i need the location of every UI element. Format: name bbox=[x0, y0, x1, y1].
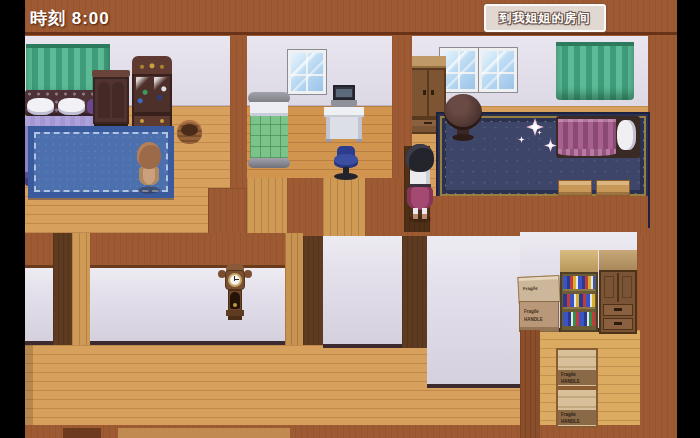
box-bottom: Fragile HANDLE bbox=[519, 301, 559, 332]
game-screen: Fragile Fragile HANDLE Fragile HA bbox=[0, 0, 700, 438]
box-stencil: Fragile bbox=[523, 285, 538, 291]
cabinet-drawers bbox=[599, 250, 637, 334]
bookshelf bbox=[560, 250, 598, 332]
clock-knob bbox=[244, 270, 252, 278]
wardrobe-door bbox=[98, 82, 110, 118]
drawer-handle bbox=[614, 308, 622, 311]
floor-shadow bbox=[25, 345, 33, 425]
bed-ruffle bbox=[558, 149, 616, 156]
glass-pane bbox=[154, 77, 168, 111]
crate-stencil: HANDLE bbox=[561, 378, 580, 383]
wall-face bbox=[90, 268, 285, 345]
desk-body bbox=[326, 117, 362, 139]
wardrobe-cornice bbox=[92, 70, 130, 77]
laptop-keyboard bbox=[331, 100, 357, 107]
pillow bbox=[27, 98, 54, 115]
player-hair bbox=[406, 144, 434, 172]
bookshelf-top bbox=[560, 250, 598, 272]
wall-cap bbox=[90, 233, 287, 268]
glass-pane bbox=[136, 77, 150, 111]
player-foot bbox=[422, 214, 427, 219]
table-top bbox=[444, 94, 482, 130]
door-shadow bbox=[402, 236, 427, 348]
npc-shadow bbox=[137, 186, 161, 194]
knob bbox=[431, 90, 434, 95]
crate-stencil: Fragile bbox=[561, 411, 576, 416]
window-shine bbox=[291, 53, 323, 91]
wall-block bbox=[287, 178, 323, 240]
bed-magenta bbox=[556, 116, 640, 158]
basket-opening bbox=[181, 124, 198, 136]
knob bbox=[423, 90, 426, 95]
player-black-hair[interactable] bbox=[406, 144, 434, 224]
cardboard-boxes: Fragile Fragile HANDLE bbox=[518, 276, 560, 332]
bed-sheet bbox=[250, 102, 288, 116]
doorway-floor bbox=[72, 233, 90, 345]
wall-pillar bbox=[520, 330, 540, 438]
cabinet-drawer bbox=[603, 304, 633, 316]
cabinet-crest bbox=[132, 56, 172, 74]
wall-cap bbox=[25, 233, 53, 268]
table-base bbox=[452, 134, 474, 141]
bench bbox=[558, 180, 592, 196]
book-row bbox=[563, 312, 595, 326]
office-chair bbox=[332, 146, 360, 182]
window-middle-room bbox=[288, 50, 326, 94]
doorway-floor bbox=[247, 178, 287, 236]
drawer-handle bbox=[614, 322, 622, 325]
bed-quilt bbox=[250, 116, 288, 158]
wall-cap bbox=[412, 196, 648, 236]
book-row bbox=[563, 294, 595, 309]
wood-pillar bbox=[285, 233, 303, 345]
pillow bbox=[58, 98, 85, 115]
screen-edge-right bbox=[677, 0, 700, 438]
crate-plate: Fragile HANDLE bbox=[558, 410, 596, 425]
window-shine bbox=[482, 51, 514, 89]
box-stencil: Fragile bbox=[524, 308, 539, 313]
bench bbox=[596, 180, 630, 196]
window-shine bbox=[443, 51, 475, 89]
box-top: Fragile bbox=[517, 275, 560, 304]
pendulum bbox=[233, 303, 237, 307]
cabinet-door-panel bbox=[604, 276, 614, 298]
wall-face bbox=[25, 268, 53, 345]
player-skirt bbox=[407, 187, 433, 210]
crate: Fragile HANDLE bbox=[556, 348, 598, 388]
wall-face bbox=[323, 236, 402, 348]
basket bbox=[177, 120, 202, 144]
crate: Fragile HANDLE bbox=[556, 388, 598, 428]
wall-notch bbox=[63, 428, 101, 438]
knob bbox=[140, 119, 144, 123]
pillow bbox=[617, 120, 636, 150]
npc-brown-hair[interactable] bbox=[137, 142, 161, 194]
wall-notch bbox=[118, 428, 290, 438]
wardrobe-dark bbox=[92, 70, 130, 128]
clock-feet bbox=[228, 316, 242, 320]
cabinet-top bbox=[599, 250, 637, 270]
wardrobe-top bbox=[410, 56, 446, 68]
curtain-right-room bbox=[556, 42, 634, 100]
window-right-room bbox=[479, 48, 517, 92]
desk-leg bbox=[326, 139, 332, 142]
npc-hair bbox=[137, 142, 161, 169]
box-stencil: HANDLE bbox=[524, 316, 543, 321]
crate-stencil: Fragile bbox=[561, 371, 576, 376]
laptop-display bbox=[336, 89, 352, 97]
bed-cover bbox=[558, 119, 616, 151]
cabinet-drawer bbox=[603, 318, 633, 330]
door-shadow bbox=[53, 233, 72, 345]
display-cabinet bbox=[132, 56, 172, 132]
book-row bbox=[563, 276, 595, 291]
single-bed-green bbox=[248, 92, 290, 174]
wardrobe-door-split bbox=[427, 70, 429, 116]
wall-face bbox=[427, 236, 520, 388]
cabinet-door-panel bbox=[622, 276, 632, 298]
clock-hand bbox=[235, 279, 239, 280]
player-shadow bbox=[408, 215, 432, 223]
hud-time-label: 時刻 8:00 bbox=[30, 7, 110, 30]
quest-button[interactable]: 到我姐姐的房间 bbox=[484, 4, 606, 32]
crate-plate: Fragile HANDLE bbox=[558, 370, 596, 385]
grandfather-clock bbox=[218, 264, 252, 322]
wall-trim-line bbox=[25, 32, 677, 35]
round-table bbox=[444, 94, 482, 140]
clock-face bbox=[228, 273, 242, 287]
quest-button-label: 到我姐姐的房间 bbox=[500, 10, 591, 27]
screen-edge-left bbox=[0, 0, 25, 438]
chair-seat bbox=[334, 154, 358, 168]
bed-foot-bar bbox=[248, 158, 290, 168]
door-shadow bbox=[303, 236, 323, 345]
wardrobe-door bbox=[112, 82, 124, 118]
wooden-crates: Fragile HANDLE Fragile HANDLE bbox=[556, 348, 598, 430]
doorway-floor bbox=[323, 178, 365, 236]
chair-base bbox=[334, 173, 358, 180]
cabinet-door-split bbox=[617, 273, 619, 302]
drawer-handle bbox=[424, 122, 432, 124]
wall-block bbox=[230, 36, 247, 188]
knob bbox=[160, 119, 164, 123]
desk-top bbox=[324, 107, 364, 117]
computer-desk bbox=[324, 84, 364, 142]
crate-stencil: HANDLE bbox=[561, 418, 580, 423]
desk-leg bbox=[356, 139, 362, 142]
player-foot bbox=[413, 214, 418, 219]
